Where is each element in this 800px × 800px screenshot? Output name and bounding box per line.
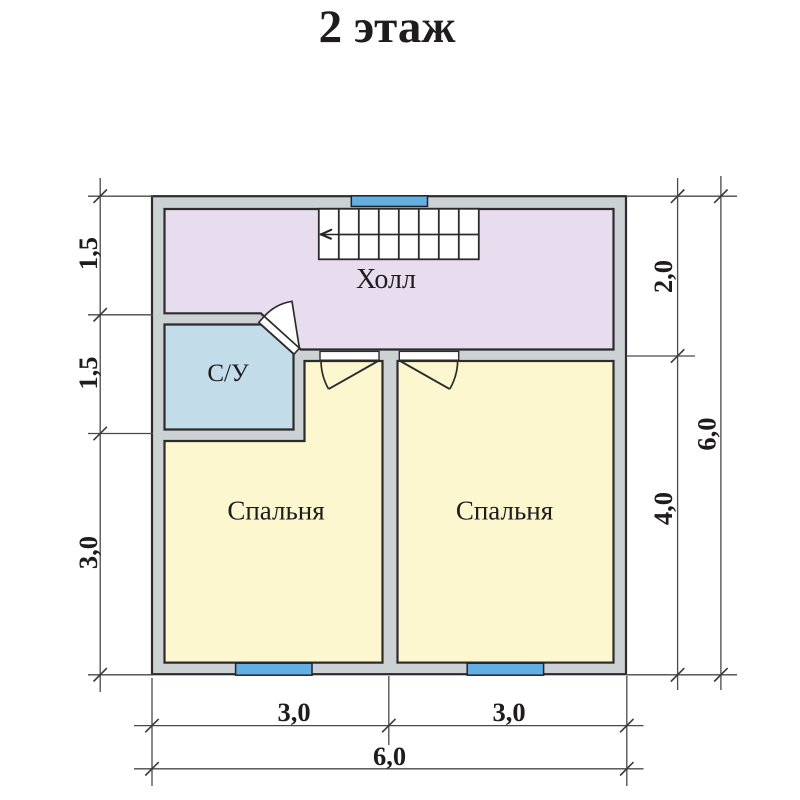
svg-text:1,5: 1,5 [73, 356, 103, 389]
svg-text:3,0: 3,0 [492, 697, 525, 727]
svg-text:С/У: С/У [207, 360, 249, 387]
svg-text:4,0: 4,0 [648, 492, 678, 525]
svg-text:Холл: Холл [356, 264, 416, 295]
svg-text:Спальня: Спальня [227, 496, 324, 526]
svg-text:3,0: 3,0 [277, 697, 310, 727]
svg-text:Спальня: Спальня [456, 496, 553, 526]
svg-text:1,5: 1,5 [73, 237, 103, 270]
svg-text:3,0: 3,0 [73, 536, 103, 569]
svg-text:2,0: 2,0 [648, 260, 678, 293]
svg-text:6,0: 6,0 [692, 417, 722, 450]
svg-text:2 этаж: 2 этаж [319, 1, 456, 53]
svg-text:6,0: 6,0 [373, 741, 406, 771]
